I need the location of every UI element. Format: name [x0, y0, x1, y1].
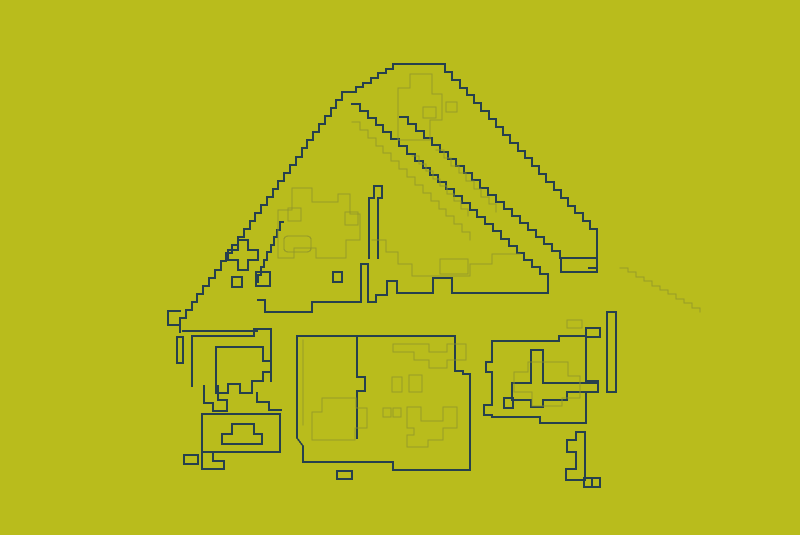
edge-map-svg: [0, 0, 800, 535]
screenshot-root: [0, 0, 800, 535]
background: [0, 0, 800, 535]
